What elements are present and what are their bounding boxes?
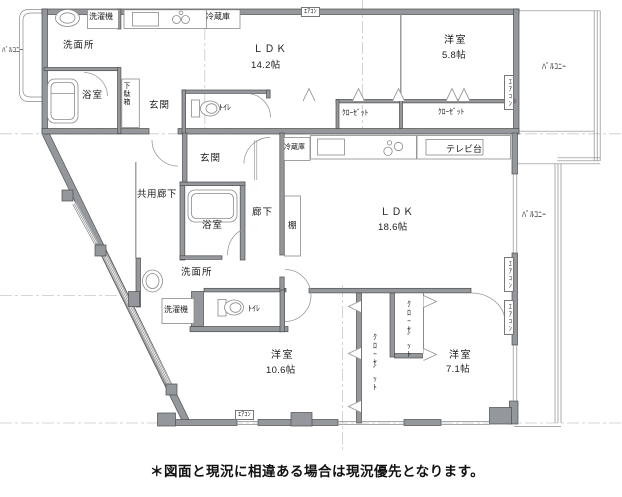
bathroom-a-label: 浴室: [82, 91, 103, 101]
washroom-b-label: 洗面所: [181, 268, 213, 278]
shared-corridor-label: 共用廊下: [137, 190, 177, 200]
shoe-cabinet-label: 下駄箱: [123, 82, 130, 106]
toilet-b-label: ﾄｲﾚ: [248, 305, 260, 313]
tv-stand-label: テレビ台: [446, 145, 482, 154]
closet-b-upper-label: ｸﾛｰｾﾞｯﾄ: [405, 300, 413, 359]
refrigerator-b-label: 冷蔵庫: [284, 144, 305, 151]
ldk-a-size: 14.2帖: [251, 61, 281, 71]
floorplan-drawing: [0, 0, 622, 497]
aircon-bottom-label: ｴｱｺﾝ: [235, 410, 254, 420]
closet-a1-label: ｸﾛｰｾﾞｯﾄ: [342, 109, 368, 117]
refrigerator-a-label: 冷蔵庫: [206, 13, 230, 21]
balcony-right-a-label: ﾊﾞﾙｺﾆｰ: [542, 63, 566, 71]
washing-machine-b-label: 洗濯機: [164, 306, 188, 314]
balcony-left-label: ﾊﾞﾙｺﾆｰ: [2, 47, 23, 54]
entrance-a-label: 玄関: [149, 101, 170, 111]
closet-b-tall-label: ｸﾛｰｾﾞｯﾄ: [371, 333, 379, 392]
bedroom-large-name: 洋室: [271, 351, 294, 361]
aircon-right-a-label: ｴｱｺﾝ: [504, 75, 514, 110]
ldk-a-name: ＬＤＫ: [253, 45, 288, 55]
bedroom-small-size: 7.1帖: [446, 365, 470, 375]
toilet-a-icon: [192, 100, 200, 117]
bedroom-small-name: 洋室: [449, 351, 472, 361]
closet-a2-label: ｸﾛｰｾﾞｯﾄ: [438, 108, 464, 116]
bedroom-a-size: 5.8帖: [442, 51, 466, 61]
bathroom-b-label: 浴室: [202, 221, 223, 231]
balcony-right-b-label: ﾊﾞﾙｺﾆｰ: [522, 211, 546, 219]
diagonal-wall: [42, 132, 189, 423]
ldk-b-size: 18.6帖: [378, 223, 408, 233]
washroom-a-label: 洗面所: [63, 41, 95, 51]
shelf-label: 棚: [288, 221, 297, 230]
entrance-b-label: 玄関: [200, 154, 221, 164]
corridor-label: 廊下: [252, 208, 273, 218]
footer-note: ＊図面と現況に相違ある場合は現況優先となります。: [150, 460, 484, 480]
bedroom-a-name: 洋室: [444, 36, 467, 46]
bedroom-large-size: 10.6帖: [266, 366, 296, 376]
washing-machine-a-label: 洗濯機: [89, 13, 113, 21]
toilet-a-label: ﾄｲﾚ: [219, 104, 231, 112]
aircon-top-label: ｴｱｺﾝ: [301, 7, 320, 17]
aircon-right-b-lower-label: ｴｱｺﾝ: [504, 300, 514, 335]
floorplan-page: ﾊﾞﾙｺﾆｰ 洗濯機 冷蔵庫 洗面所 ＬＤＫ 14.2帖 浴室 下駄箱 玄関 ﾄ…: [0, 0, 622, 497]
ldk-b-name: ＬＤＫ: [380, 208, 415, 218]
aircon-right-b-upper-label: ｴｱｺﾝ: [504, 257, 514, 292]
